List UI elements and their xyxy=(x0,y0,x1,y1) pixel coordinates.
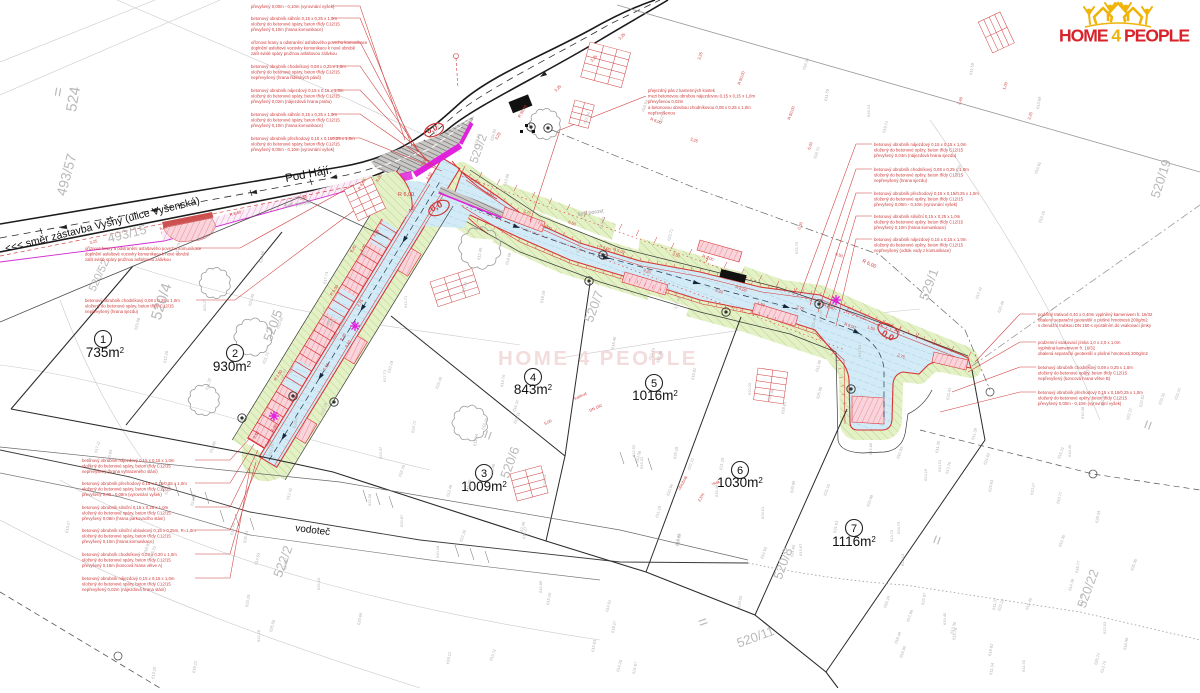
svg-text:převyšený 0,10m (hrana komunik: převyšený 0,10m (hrana komunikace) xyxy=(874,225,946,230)
svg-text:obalený separační geotextilií: obalený separační geotextilií o plošné h… xyxy=(1038,318,1148,323)
svg-text:mezi betonovou obrubou nájezdo: mezi betonovou obrubou nájezdovou 0,15 x… xyxy=(648,94,755,99)
svg-text:625.10: 625.10 xyxy=(316,577,321,590)
svg-text:převyšený 0,02m (nájezdová hra: převyšený 0,02m (nájezdová hrana prahu) xyxy=(251,99,332,104)
svg-text:625.79: 625.79 xyxy=(794,241,799,254)
svg-text:622.13: 622.13 xyxy=(900,553,905,566)
svg-text:podzemní vsakovací jímka 1,0 x: podzemní vsakovací jímka 1,0 x 2,0 x 1,0… xyxy=(1038,340,1121,345)
svg-text:930m2: 930m2 xyxy=(213,359,252,374)
svg-text:625.87: 625.87 xyxy=(399,514,404,527)
svg-text:uložený do betonové spáry, bet: uložený do betonové spáry, beton třídy C… xyxy=(82,534,171,539)
svg-text:betonový obrubník silniční obl: betonový obrubník silniční obloukový 0,1… xyxy=(82,528,196,533)
svg-text:611.68: 611.68 xyxy=(1079,593,1084,606)
svg-text:uložený do betonové spáry, bet: uložený do betonové spáry, beton třídy C… xyxy=(251,118,340,123)
svg-text:a betonovou obrubou chodníkovo: a betonovou obrubou chodníkovou 0,08 x 0… xyxy=(648,105,751,110)
svg-text:HOME 4 PEOPLE: HOME 4 PEOPLE xyxy=(498,347,698,370)
svg-text:1030m2: 1030m2 xyxy=(717,475,763,490)
svg-text:612.71: 612.71 xyxy=(403,295,408,308)
svg-text:613.72: 613.72 xyxy=(889,529,894,542)
svg-text:1: 1 xyxy=(100,334,106,346)
svg-text:podélný trativod 0,40 x 0,40m: podélný trativod 0,40 x 0,40m vyplněný k… xyxy=(1038,312,1153,317)
svg-text:620.20: 620.20 xyxy=(747,382,752,395)
svg-text:nepřevyšený (hrana sjezdu): nepřevyšený (hrana sjezdu) xyxy=(874,178,928,183)
svg-text:betonový obrubník nájezdový 0,: betonový obrubník nájezdový 0,15 x 0,15 … xyxy=(82,458,175,463)
svg-text:uložený do betonové spáry, bet: uložený do betonové spáry, beton třídy C… xyxy=(82,464,171,469)
svg-text:betonový obrubník chodníkový 0: betonový obrubník chodníkový 0,08 x 0,20… xyxy=(82,552,177,557)
svg-text:619.13: 619.13 xyxy=(866,104,871,117)
svg-text:nepřevyšený (hrana sjezdu): nepřevyšený (hrana sjezdu) xyxy=(85,309,139,314)
svg-text:uložený do betonové opěry, bet: uložený do betonové opěry, beton třídy C… xyxy=(874,243,964,248)
svg-text:betonový obrubník přechodový 0: betonový obrubník přechodový 0,15 x 0,15… xyxy=(874,191,979,196)
svg-text:616.22: 616.22 xyxy=(639,456,644,469)
svg-text:613.67: 613.67 xyxy=(798,543,803,556)
svg-text:2: 2 xyxy=(232,348,238,360)
svg-text:převyšený 0,10m (hrana komunik: převyšený 0,10m (hrana komunikace) xyxy=(82,539,154,544)
svg-text:612.63: 612.63 xyxy=(87,457,92,470)
svg-text:623.37: 623.37 xyxy=(378,446,383,459)
svg-text:uložený do betonové spáry, bet: uložený do betonové spáry, beton třídy C… xyxy=(82,511,171,516)
svg-text:625.27: 625.27 xyxy=(202,298,207,311)
svg-text:betonový obrubník sáhnín 0,15: betonový obrubník sáhnín 0,15 x 0,25 x 1… xyxy=(251,16,337,21)
svg-text:610.49: 610.49 xyxy=(818,309,823,322)
svg-text:610.38: 610.38 xyxy=(1080,406,1085,419)
svg-text:betonový obrubník nájezdový 0,: betonový obrubník nájezdový 0,15 x 0,15 … xyxy=(874,142,967,147)
svg-text:betonový obrubník silniční 0,1: betonový obrubník silniční 0,15 x 0,25 x… xyxy=(82,505,169,510)
svg-text:betonový obrubník nájezdový 0,: betonový obrubník nájezdový 0,15 x 0,15 … xyxy=(251,88,344,93)
svg-text:s drenážní trubkou DN 150 s vy: s drenážní trubkou DN 150 s vyústěním do… xyxy=(1038,323,1152,328)
svg-text:uložený do betonové spáry, bet: uložený do betonové spáry, beton třídy C… xyxy=(85,304,174,309)
svg-text:převyšený 0,00m - 0,10m (vyrov: převyšený 0,00m - 0,10m (vyrovnání vyšek… xyxy=(251,147,335,152)
svg-text:7: 7 xyxy=(851,523,857,535)
svg-text:622.58: 622.58 xyxy=(367,493,372,506)
svg-text:617.71: 617.71 xyxy=(382,369,387,382)
svg-text:převyšený 0,16m (koncová hrana: převyšený 0,16m (koncová hrana větve A) xyxy=(82,563,163,568)
svg-text:betonový obrubník sáhnín 0,15: betonový obrubník sáhnín 0,15 x 0,25 x 1… xyxy=(251,112,337,117)
svg-text:převyšenou 0,02m: převyšenou 0,02m xyxy=(648,99,684,104)
svg-text:uložený do betonové spáry, bet: uložený do betonové spáry, beton třídy C… xyxy=(251,94,340,99)
svg-text:uložený do betonové spáry, bet: uložený do betonové spáry, beton třídy C… xyxy=(82,487,171,492)
svg-text:převyšený 0,04m (nájezdová hra: převyšený 0,04m (nájezdová hrana sjezdu) xyxy=(874,153,957,158)
svg-text:843m2: 843m2 xyxy=(514,382,553,397)
svg-text:převyšený 0,08m (hrana parkova: převyšený 0,08m (hrana parkovacího stání… xyxy=(82,516,165,521)
svg-text:HOME 4 PEOPLE: HOME 4 PEOPLE xyxy=(1059,26,1190,46)
svg-text:převyšený 0,00 - 0,08m (vyrovn: převyšený 0,00 - 0,08m (vyrovnání vyšek) xyxy=(82,492,162,497)
svg-text:1116m2: 1116m2 xyxy=(832,534,876,549)
svg-text:622.53: 622.53 xyxy=(1102,621,1107,634)
svg-text:uložený do betonové opěry, bet: uložený do betonové opěry, beton třídy C… xyxy=(874,220,964,225)
svg-text:převyšený 0,00m - 0,10m (vyrov: převyšený 0,00m - 0,10m (vyrovnání vyšek… xyxy=(251,4,335,9)
svg-text:612.89: 612.89 xyxy=(868,442,873,455)
svg-text:R 6,00: R 6,00 xyxy=(398,192,414,198)
svg-text:oříznout hrany a odstranění as: oříznout hrany a odstranění asfaltového … xyxy=(251,40,368,45)
svg-text:uložený do betonové opěry, bet: uložený do betonové opěry, beton třídy C… xyxy=(874,173,964,178)
svg-text:624.19: 624.19 xyxy=(923,468,928,481)
svg-text:618.45: 618.45 xyxy=(1067,444,1072,457)
svg-text:převyšený 0,10m (hrana komunik: převyšený 0,10m (hrana komunikace) xyxy=(251,123,323,128)
svg-text:betonový obrubník silniční 0,1: betonový obrubník silniční 0,15 x 0,25 x… xyxy=(874,214,961,219)
svg-text:622.83: 622.83 xyxy=(1100,393,1105,406)
svg-text:619.45: 619.45 xyxy=(942,612,947,625)
svg-text:betonový obrubník přechodový 0: betonový obrubník přechodový 0,15 x 0,15… xyxy=(1038,390,1143,395)
svg-text:betonový obrubník chodníkový 0: betonový obrubník chodníkový 0,08 x 0,25… xyxy=(251,64,346,69)
svg-text:přejezdný pás z kamenných kost: přejezdný pás z kamenných kostek xyxy=(648,88,716,93)
svg-text:převyšený 0,00m - 0,10m (vyrov: převyšený 0,00m - 0,10m (vyrovnání vyšek… xyxy=(874,202,958,207)
svg-text:oříznout hrany a odstranění as: oříznout hrany a odstranění asfaltového … xyxy=(85,246,202,251)
svg-text:uložený do betonové spáry, bet: uložený do betonové spáry, beton třídy C… xyxy=(82,558,171,563)
svg-text:612.64: 612.64 xyxy=(857,344,862,357)
svg-text:nepřevyšený (odtok vody z komu: nepřevyšený (odtok vody z komunikace) xyxy=(874,248,951,253)
svg-text:615.46: 615.46 xyxy=(714,484,719,497)
svg-text:nepřevyšený (hrana řidičských: nepřevyšený (hrana řidičských pásů) xyxy=(251,75,322,80)
svg-text:uložený do betonové spáry, bet: uložený do betonové spáry, beton třídy C… xyxy=(251,142,340,147)
svg-text:610.51: 610.51 xyxy=(937,459,942,472)
svg-text:622.18: 622.18 xyxy=(256,629,261,642)
svg-text:nepřevyšený 0,02m (nájezdová h: nepřevyšený 0,02m (nájezdová hrana stání… xyxy=(82,587,166,592)
svg-text:uložený do betonové opěry, bet: uložený do betonové opěry, beton třídy C… xyxy=(1038,396,1128,401)
svg-text:betonový obrubník nájezdový 0,: betonový obrubník nájezdový 0,15 x 0,15 … xyxy=(874,237,967,242)
svg-text:nepřevyšený (hrana vyhrazeného: nepřevyšený (hrana vyhrazeného stání) xyxy=(82,469,158,474)
svg-text:735m2: 735m2 xyxy=(86,345,125,360)
svg-text:zalít svislé spáry pružnou asf: zalít svislé spáry pružnou asfaltovou zá… xyxy=(251,51,337,56)
svg-text:uložený do betonové spáry, bet: uložený do betonové spáry, beton třídy C… xyxy=(251,70,340,75)
svg-text:betonový obrubník chodníkový 0: betonový obrubník chodníkový 0,08 x 0,25… xyxy=(85,298,180,303)
svg-text:610.54: 610.54 xyxy=(542,474,547,487)
svg-text:betonový obrubník nájezdový 0,: betonový obrubník nájezdový 0,15 x 0,15 … xyxy=(82,576,175,581)
svg-text:uložený do betonové spáry, bet: uložený do betonové spáry, beton třídy C… xyxy=(82,582,171,587)
svg-text:610.18: 610.18 xyxy=(435,545,440,558)
svg-text:612.52: 612.52 xyxy=(631,444,636,457)
svg-text:vyplněná kamenivem fr. 16/32: vyplněná kamenivem fr. 16/32 xyxy=(1038,346,1096,351)
svg-text:611.50: 611.50 xyxy=(1021,659,1026,672)
svg-text:uložený do betonové spáry, bet: uložený do betonové spáry, beton třídy C… xyxy=(251,22,340,27)
svg-text:3: 3 xyxy=(481,468,487,480)
svg-text:převyšený 0,00m - 0,10m (vyrov: převyšený 0,00m - 0,10m (vyrovnání vyšek… xyxy=(1038,401,1122,406)
svg-text:1016m2: 1016m2 xyxy=(632,388,678,403)
svg-text:převyšený 0,10m (hrana komunik: převyšený 0,10m (hrana komunikace) xyxy=(251,27,323,32)
svg-text:zalít svislé spáry pružnou asf: zalít svislé spáry pružnou asfaltovou zá… xyxy=(85,257,171,262)
svg-text:uložený do betonové opěry, bet: uložený do betonové opěry, beton třídy C… xyxy=(874,148,964,153)
svg-text:624.51: 624.51 xyxy=(760,506,765,519)
svg-text:obalená separační geotextilií: obalená separační geotextilií o plošné h… xyxy=(1038,351,1148,356)
svg-text:doplnění asfaltové vozovky kom: doplnění asfaltové vozovky komunikace k … xyxy=(251,46,356,51)
svg-text:uložený do betonové opěry, bet: uložený do betonové opěry, beton třídy C… xyxy=(874,197,964,202)
svg-text:betonový obrubník přechodový 0: betonový obrubník přechodový 0,15 x 0,15… xyxy=(251,136,355,141)
svg-text:nepřevyšený (koncová hrana vět: nepřevyšený (koncová hrana větve B) xyxy=(1038,376,1111,381)
svg-text:615.89: 615.89 xyxy=(538,580,543,593)
svg-text:624.73: 624.73 xyxy=(896,521,901,534)
